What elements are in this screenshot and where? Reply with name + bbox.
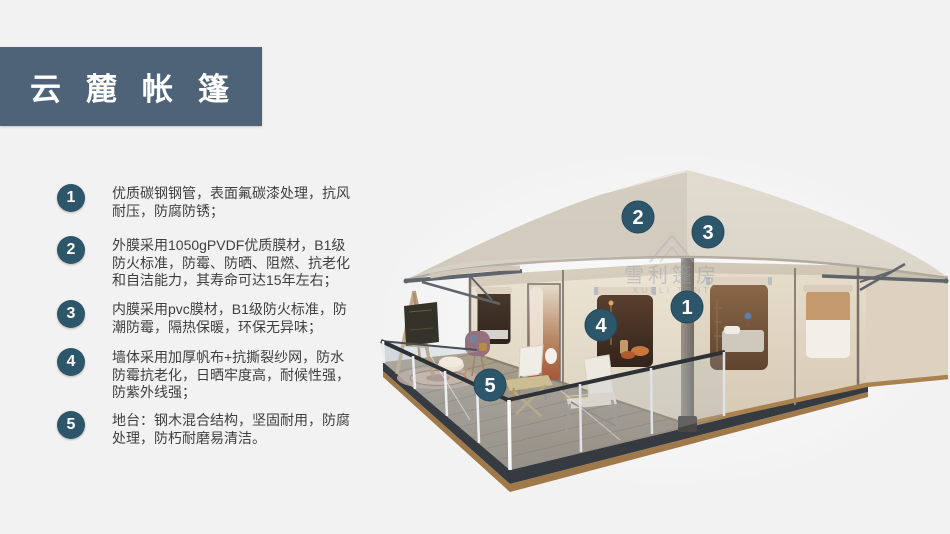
watermark-en: XUELI TENT bbox=[633, 285, 712, 295]
watermark-cn: 雪利篷房 bbox=[624, 264, 720, 287]
feature-text: 外膜采用1050gPVDF优质膜材，B1级防火标准，防霉、防晒、阻燃、抗老化和自… bbox=[112, 237, 357, 290]
marker-2: 2 bbox=[622, 201, 654, 233]
feature-number-badge: 3 bbox=[57, 300, 85, 328]
marker-4: 4 bbox=[585, 309, 617, 341]
tent-illustration: 雪利篷房 XUELI TENT bbox=[370, 150, 950, 500]
svg-text:3: 3 bbox=[702, 222, 713, 244]
slide: 云麓帐篷 1 优质碳钢钢管，表面氟碳漆处理，抗风耐压，防腐防锈； 2 外膜采用1… bbox=[0, 0, 950, 534]
svg-text:2: 2 bbox=[632, 207, 643, 229]
feature-number-badge: 4 bbox=[57, 348, 85, 376]
marker-3: 3 bbox=[692, 216, 724, 248]
feature-text: 地台：钢木混合结构，坚固耐用，防腐处理，防朽耐磨易清洁。 bbox=[112, 412, 357, 447]
feature-text: 优质碳钢钢管，表面氟碳漆处理，抗风耐压，防腐防锈； bbox=[112, 185, 357, 220]
svg-text:5: 5 bbox=[484, 375, 495, 397]
blind-window bbox=[803, 285, 853, 358]
feature-number-badge: 2 bbox=[57, 236, 85, 264]
marker-5: 5 bbox=[474, 369, 506, 401]
svg-text:4: 4 bbox=[595, 315, 607, 337]
marker-1: 1 bbox=[671, 291, 703, 323]
page-title: 云麓帐篷 bbox=[0, 64, 254, 109]
feature-text: 内膜采用pvc膜材，B1级防火标准，防潮防霉，隔热保暖，环保无异味； bbox=[112, 301, 357, 336]
feature-text: 墙体采用加厚帆布+抗撕裂纱网，防水防霉抗老化，日晒牢度高，耐候性强，防紫外线强； bbox=[112, 349, 357, 402]
feature-number-badge: 1 bbox=[57, 184, 85, 212]
svg-text:1: 1 bbox=[681, 297, 692, 319]
feature-number-badge: 5 bbox=[57, 411, 85, 439]
title-box: 云麓帐篷 bbox=[0, 47, 262, 126]
